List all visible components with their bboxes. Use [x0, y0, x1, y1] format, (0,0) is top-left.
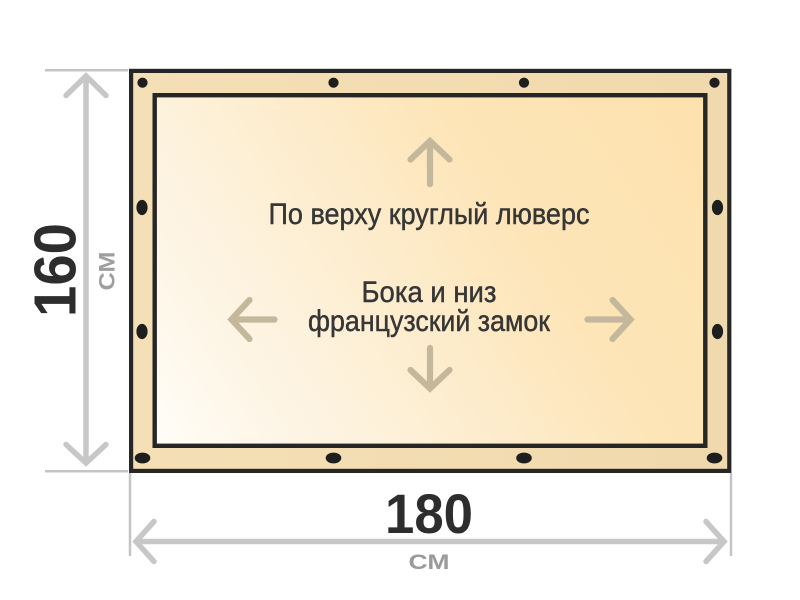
svg-text:180: 180 — [385, 482, 473, 545]
svg-text:французский замок: французский замок — [308, 305, 551, 338]
svg-text:СМ: СМ — [95, 252, 120, 291]
svg-text:СМ: СМ — [409, 551, 450, 574]
svg-text:По верху круглый люверс: По верху круглый люверс — [269, 198, 590, 231]
svg-text:160: 160 — [23, 223, 89, 317]
